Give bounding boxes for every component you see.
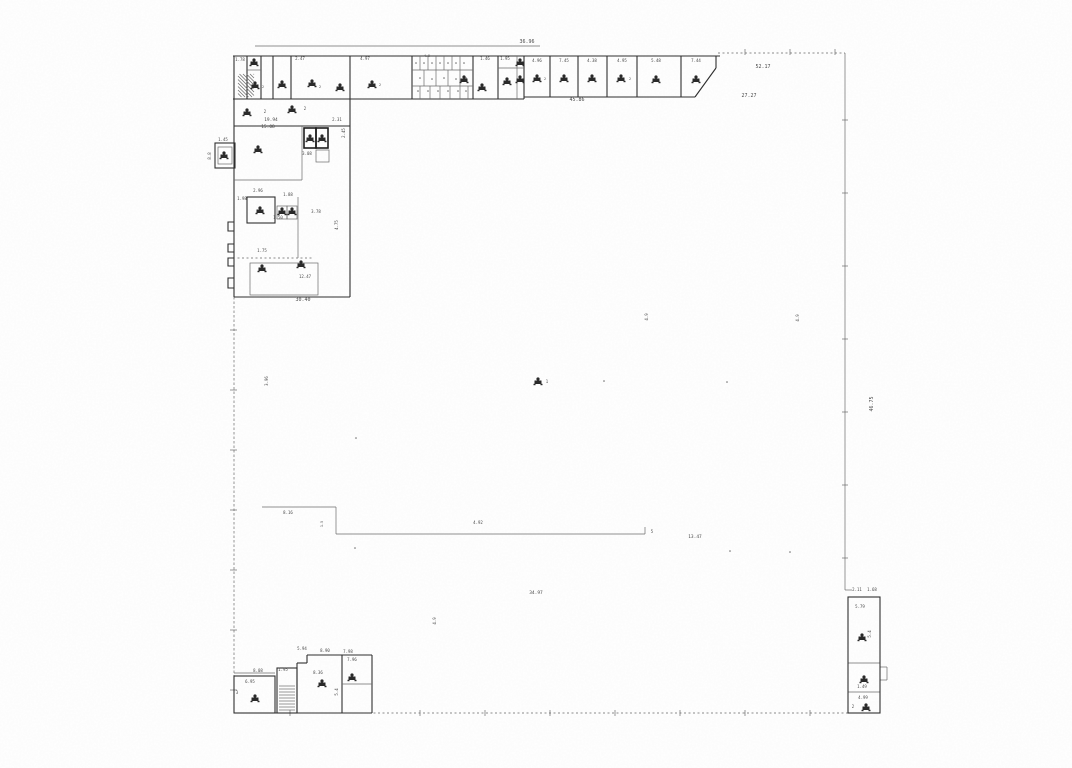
fixture-leg <box>265 271 267 272</box>
fixture-body <box>279 84 286 88</box>
dimension-label: 2 <box>262 85 264 89</box>
dimension-label: 2.11 <box>852 587 862 592</box>
fixture-leg <box>692 82 694 83</box>
fixture-leg <box>348 680 350 681</box>
scan-mark <box>465 90 467 92</box>
fixture-leg <box>534 384 536 385</box>
fixture-body <box>252 85 259 89</box>
fixture-leg <box>375 87 377 88</box>
fixture-body <box>251 62 258 66</box>
fixture-body <box>319 683 326 687</box>
fixture-head <box>222 151 225 154</box>
dimension-label: 27.27 <box>741 93 756 99</box>
fixture-head <box>860 633 863 636</box>
fixture-head <box>290 105 293 108</box>
fixture-leg <box>336 90 338 91</box>
dimension-label: 5.48 <box>651 58 661 63</box>
dimension-label: 3.08 <box>302 151 312 156</box>
fixture-head <box>480 83 483 86</box>
fixture-leg <box>315 86 317 87</box>
dimension-label: 4.99 <box>858 695 868 700</box>
fixture-head <box>654 75 657 78</box>
dimension-label: 4.9 <box>432 617 437 625</box>
fixture-body <box>289 211 296 215</box>
dimension-label: 1.78 <box>235 57 245 62</box>
fixture-leg <box>258 88 260 89</box>
scan-mark <box>465 77 467 79</box>
fixture-body <box>479 87 486 91</box>
fixture-leg <box>288 112 290 113</box>
fixture-head <box>694 75 697 78</box>
fixture-body <box>255 149 262 153</box>
fixture-leg <box>263 213 265 214</box>
fixture-head <box>320 679 323 682</box>
fixture-head <box>256 145 259 148</box>
fixture-leg <box>285 214 287 215</box>
fixture-body <box>618 78 625 82</box>
dimension-label: 7.44 <box>691 58 701 63</box>
fixture-leg <box>220 158 222 159</box>
dimension-label: 2.96 <box>253 188 263 193</box>
fixture-leg <box>288 214 290 215</box>
scan-mark <box>437 90 439 92</box>
dimension-label: 2 <box>544 77 546 81</box>
fixture-leg <box>595 81 597 82</box>
fixture-head <box>253 694 256 697</box>
fixture-body <box>309 83 316 87</box>
dimension-label: 1.68 <box>867 587 877 592</box>
fixture-leg <box>516 82 518 83</box>
fixture-leg <box>541 384 543 385</box>
fixture-body <box>337 87 344 91</box>
dimension-label: 1.75 <box>257 248 267 253</box>
fixture-leg <box>325 686 327 687</box>
fixture-leg <box>540 81 542 82</box>
fixture-leg <box>308 86 310 87</box>
fixture-leg <box>254 152 256 153</box>
fixture-leg <box>523 82 525 83</box>
fixture-leg <box>503 84 505 85</box>
fixture-leg <box>257 65 259 66</box>
fixture-body <box>863 707 870 711</box>
fixture-head <box>280 207 283 210</box>
fixture-body <box>517 79 524 83</box>
dimension-label: 2.45 <box>341 128 346 138</box>
fixture-leg <box>510 84 512 85</box>
fixture-leg <box>588 81 590 82</box>
dimension-label: 12.47 <box>299 274 312 279</box>
fixture-leg <box>313 141 315 142</box>
dimension-label: 4.92 <box>473 520 483 525</box>
fixture-leg <box>862 710 864 711</box>
scan-mark <box>457 90 459 92</box>
dimension-label: 13.47 <box>688 534 702 540</box>
fixture-leg <box>258 701 260 702</box>
fixture-leg <box>858 640 860 641</box>
dimension-label: 2.31 <box>332 117 342 122</box>
scan-mark <box>423 62 425 64</box>
dimension-label: 7.98 <box>343 649 353 654</box>
fixture-head <box>338 83 341 86</box>
fixture-head <box>536 377 539 380</box>
fixture-leg <box>258 271 260 272</box>
fixture-leg <box>485 90 487 91</box>
fixture-leg <box>368 87 370 88</box>
dimension-label: 46.75 <box>869 396 875 411</box>
scan-mark <box>439 62 441 64</box>
fixture-head <box>562 74 565 77</box>
fixture-leg <box>278 87 280 88</box>
scan-mark <box>431 62 433 64</box>
dimension-label: 2 <box>629 77 631 81</box>
scan-mark <box>447 90 449 92</box>
fixture-leg <box>699 82 701 83</box>
dimension-label: 5.4 <box>334 688 339 696</box>
fixture-leg <box>355 680 357 681</box>
fixture-leg <box>306 141 308 142</box>
dimension-label: 4.75 <box>334 220 339 230</box>
fixture-leg <box>256 213 258 214</box>
dimension-label: 2 <box>319 85 321 89</box>
dimension-label: 8.90 <box>320 648 330 653</box>
fixture-head <box>320 134 323 137</box>
dimension-label: 2.47 <box>295 56 305 61</box>
fixture-leg <box>295 214 297 215</box>
fixture-head <box>245 108 248 111</box>
fixture-leg <box>261 152 263 153</box>
scan-mark <box>443 77 445 79</box>
fixture-head <box>862 675 865 678</box>
floor-plan-svg: 36.9645.8652.1727.2746.7530.4019.9415.08… <box>0 0 1072 768</box>
dimension-label: 3.96 <box>264 376 269 386</box>
dimension-label: 15.08 <box>261 124 275 130</box>
fixture-leg <box>318 141 320 142</box>
dimension-label: 1.95 <box>278 667 288 672</box>
fixture-leg <box>227 158 229 159</box>
fixture-leg <box>250 115 252 116</box>
fixture-body <box>859 637 866 641</box>
fixture-body <box>461 79 468 83</box>
scan-mark <box>415 62 417 64</box>
fixture-leg <box>624 81 626 82</box>
fixture-leg <box>533 81 535 82</box>
fixture-body <box>561 78 568 82</box>
fixture-body <box>653 79 660 83</box>
fixture-head <box>370 80 373 83</box>
fixture-body <box>298 264 305 268</box>
scan-mark <box>419 77 421 79</box>
dimension-label: 7.45 <box>559 58 569 63</box>
dimension-label: 7.96 <box>347 657 357 662</box>
fixture-body <box>279 211 286 215</box>
dimension-label: 52.17 <box>755 64 770 70</box>
dimension-label: 6.95 <box>245 679 255 684</box>
fixture-body <box>589 78 596 82</box>
dimension-label: 1.46 <box>480 56 490 61</box>
fixture-head <box>299 260 302 263</box>
scan-mark <box>427 90 429 92</box>
fixture-head <box>505 77 508 80</box>
scan-mark <box>726 381 728 383</box>
fixture-body <box>535 381 542 385</box>
dimension-label: 4.97 <box>360 56 370 61</box>
fixture-body <box>319 138 326 142</box>
fixture-head <box>518 58 521 61</box>
fixture-head <box>864 703 867 706</box>
fixture-body <box>252 698 259 702</box>
fixture-leg <box>860 682 862 683</box>
fixture-leg <box>865 640 867 641</box>
fixture-head <box>590 74 593 77</box>
dimension-label: 5.79 <box>855 604 865 609</box>
fixture-head <box>253 81 256 84</box>
fixture-leg <box>560 81 562 82</box>
fixture-head <box>619 74 622 77</box>
fixture-head <box>535 74 538 77</box>
dimension-label: 34.97 <box>529 590 543 596</box>
scan-mark <box>354 547 356 549</box>
fixture-head <box>462 75 465 78</box>
scan-mark <box>603 380 605 382</box>
fixture-leg <box>567 81 569 82</box>
dimension-label: 1.45 <box>218 137 228 142</box>
fixture-leg <box>869 710 871 711</box>
dimension-label: 8.36 <box>313 670 323 675</box>
dimension-label: 36.96 <box>519 39 534 45</box>
dimension-label: 4.9 <box>644 313 649 321</box>
scan-mark <box>789 551 791 553</box>
dimension-label: 8.8 <box>207 152 212 160</box>
fixture-leg <box>467 82 469 83</box>
fixture-leg <box>250 65 252 66</box>
fixture-body <box>693 79 700 83</box>
fixture-head <box>280 80 283 83</box>
fixture-body <box>289 109 296 113</box>
scanned-floor-plan: 36.9645.8652.1727.2746.7530.4019.9415.08… <box>0 0 1072 768</box>
fixture-leg <box>243 115 245 116</box>
fixture-head <box>308 134 311 137</box>
fixture-body <box>369 84 376 88</box>
fixture-body <box>534 78 541 82</box>
dimension-label: 5.94 <box>297 646 307 651</box>
fixture-leg <box>867 682 869 683</box>
dimension-label: 1.49 <box>857 684 867 689</box>
dimension-label: 4.96 <box>532 58 542 63</box>
dimension-label: 19.94 <box>264 117 278 123</box>
fixture-leg <box>617 81 619 82</box>
fixture-body <box>861 679 868 683</box>
dimension-label: 1.50 <box>273 215 283 220</box>
fixture-body <box>307 138 314 142</box>
fixture-leg <box>478 90 480 91</box>
fixture-leg <box>251 88 253 89</box>
dimension-label: 4.38 <box>587 58 597 63</box>
dimension-label: 30.40 <box>295 297 310 303</box>
fixture-body <box>221 155 228 159</box>
scan-mark <box>463 62 465 64</box>
scan-mark <box>455 62 457 64</box>
dimension-label: 1.5 <box>320 521 324 527</box>
dimension-label: 8.08 <box>253 668 263 673</box>
dimension-label: 1.88 <box>283 192 293 197</box>
fixture-leg <box>516 65 518 66</box>
fixture-leg <box>652 82 654 83</box>
fixture-head <box>252 58 255 61</box>
dimension-label: 45.86 <box>569 97 584 103</box>
scan-mark <box>431 78 433 80</box>
fixture-leg <box>343 90 345 91</box>
fixture-leg <box>285 87 287 88</box>
fixture-body <box>244 112 251 116</box>
fixture-leg <box>295 112 297 113</box>
fixture-leg <box>251 701 253 702</box>
scan-mark <box>355 437 357 439</box>
fixture-leg <box>659 82 661 83</box>
scan-mark <box>417 90 419 92</box>
fixture-body <box>504 81 511 85</box>
dimension-label: 1.98 <box>237 196 247 201</box>
fixture-head <box>350 673 353 676</box>
fixture-body <box>349 677 356 681</box>
fixture-head <box>310 79 313 82</box>
dimension-label: 4.95 <box>617 58 627 63</box>
dimension-label: 5.4 <box>867 630 872 638</box>
fixture-body <box>517 62 524 66</box>
fixture-leg <box>297 267 299 268</box>
fixture-head <box>260 264 263 267</box>
fixture-leg <box>523 65 525 66</box>
fixture-leg <box>325 141 327 142</box>
fixture-leg <box>318 686 320 687</box>
hatch-line <box>254 74 255 75</box>
dimension-label: 2 <box>379 83 381 87</box>
dimension-label: 8.16 <box>283 510 293 515</box>
dimension-label: 4.9 <box>795 314 800 322</box>
dimension-label: 3.78 <box>311 209 321 214</box>
scan-mark <box>455 78 457 80</box>
dimension-label: 4.9 <box>424 54 430 58</box>
scan-mark <box>447 62 449 64</box>
fixture-leg <box>304 267 306 268</box>
fixture-head <box>258 206 261 209</box>
fixture-head <box>290 207 293 210</box>
scan-mark <box>729 550 731 552</box>
fixture-leg <box>460 82 462 83</box>
dimension-label: 1.95 <box>500 56 510 61</box>
fixture-body <box>259 268 266 272</box>
fixture-head <box>518 75 521 78</box>
fixture-body <box>257 210 264 214</box>
